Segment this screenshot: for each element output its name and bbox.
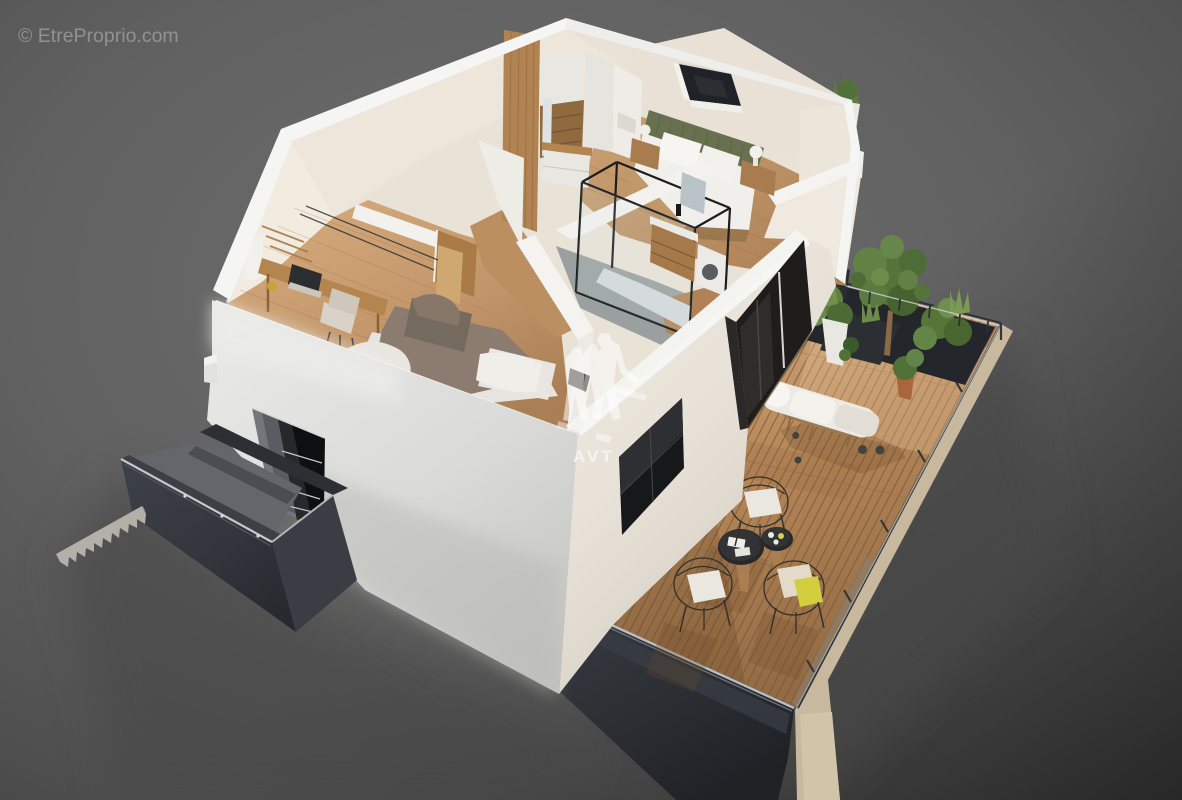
svg-text:© EtreProprio.com: © EtreProprio.com <box>18 25 179 47</box>
svg-text:AVT: AVT <box>573 447 615 466</box>
